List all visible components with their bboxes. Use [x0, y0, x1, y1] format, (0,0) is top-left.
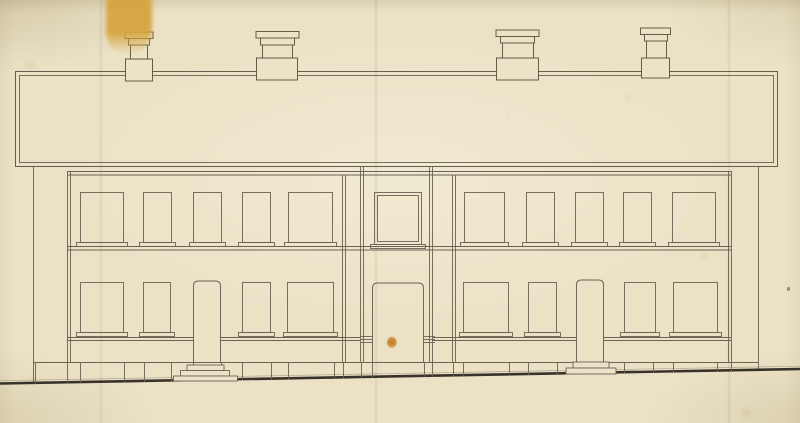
upper-window-7-sill	[523, 243, 559, 247]
chimney-3-neck	[501, 36, 535, 43]
upper-window-8-sill	[572, 243, 608, 247]
upper-window-4	[243, 193, 271, 243]
upper-window-3	[194, 193, 222, 243]
left-door-steps-step-2	[181, 371, 230, 377]
left-house-door	[194, 281, 221, 363]
center-bay-window-inner	[378, 196, 419, 242]
lower-window-6	[529, 283, 557, 333]
lower-window-5-sill	[460, 333, 513, 337]
chimney-4-stack	[647, 40, 667, 58]
upper-window-2	[144, 193, 172, 243]
upper-window-3-sill	[190, 243, 226, 247]
lower-window-4-sill	[284, 333, 338, 337]
chimney-2-cap	[256, 32, 299, 39]
ground-line	[0, 369, 800, 384]
roof-parapet-outer	[16, 72, 778, 167]
upper-window-9	[624, 193, 652, 243]
chimney-3-stack	[503, 42, 534, 58]
left-door-steps-step-1	[187, 365, 224, 371]
dark-speck	[787, 287, 790, 291]
right-door-steps-step-2	[566, 368, 616, 374]
lower-window-3-sill	[239, 333, 275, 337]
lower-window-7	[625, 283, 656, 333]
upper-window-6-sill	[461, 243, 509, 247]
upper-window-1	[81, 193, 124, 243]
ground-shadow-line	[0, 366, 800, 381]
chimney-4-base	[642, 58, 670, 78]
lower-window-8-sill	[670, 333, 722, 337]
chimney-2-base	[257, 58, 298, 80]
upper-window-4-sill	[239, 243, 275, 247]
chimney-4-neck	[645, 34, 668, 41]
upper-window-5-sill	[285, 243, 337, 247]
yellow-tape-stain	[106, 0, 152, 54]
upper-window-9-sill	[620, 243, 656, 247]
chimney-2-neck	[261, 38, 295, 45]
lower-window-1	[81, 283, 124, 333]
left-door-steps-step-3	[174, 376, 238, 381]
upper-window-5	[289, 193, 333, 243]
lower-window-8	[674, 283, 718, 333]
center-entrance-door	[373, 283, 424, 363]
elevation-drawing	[0, 0, 800, 423]
orange-ink-spot	[387, 337, 397, 348]
right-house-door	[577, 280, 604, 362]
chimney-2-stack	[263, 44, 293, 58]
lower-window-7-sill	[621, 333, 660, 337]
lower-window-1-sill	[77, 333, 128, 337]
upper-window-6	[465, 193, 505, 243]
lower-window-6-sill	[525, 333, 561, 337]
lower-window-2-sill	[140, 333, 175, 337]
upper-window-8	[576, 193, 604, 243]
roof-parapet-inner	[20, 76, 774, 163]
chimney-4-cap	[641, 28, 671, 35]
upper-window-2-sill	[140, 243, 176, 247]
right-door-steps-step-1	[573, 362, 609, 368]
scanned-drawing-page	[0, 0, 800, 423]
chimney-3-base	[497, 58, 539, 80]
upper-window-7	[527, 193, 555, 243]
chimney-1-base	[126, 59, 153, 81]
lower-window-3	[243, 283, 271, 333]
lower-window-5	[464, 283, 509, 333]
upper-window-10	[673, 193, 716, 243]
upper-window-1-sill	[77, 243, 128, 247]
lower-window-4	[288, 283, 334, 333]
lower-window-2	[144, 283, 171, 333]
center-bay-window-outer	[375, 193, 422, 245]
upper-window-10-sill	[669, 243, 720, 247]
chimney-3-cap	[496, 30, 539, 37]
